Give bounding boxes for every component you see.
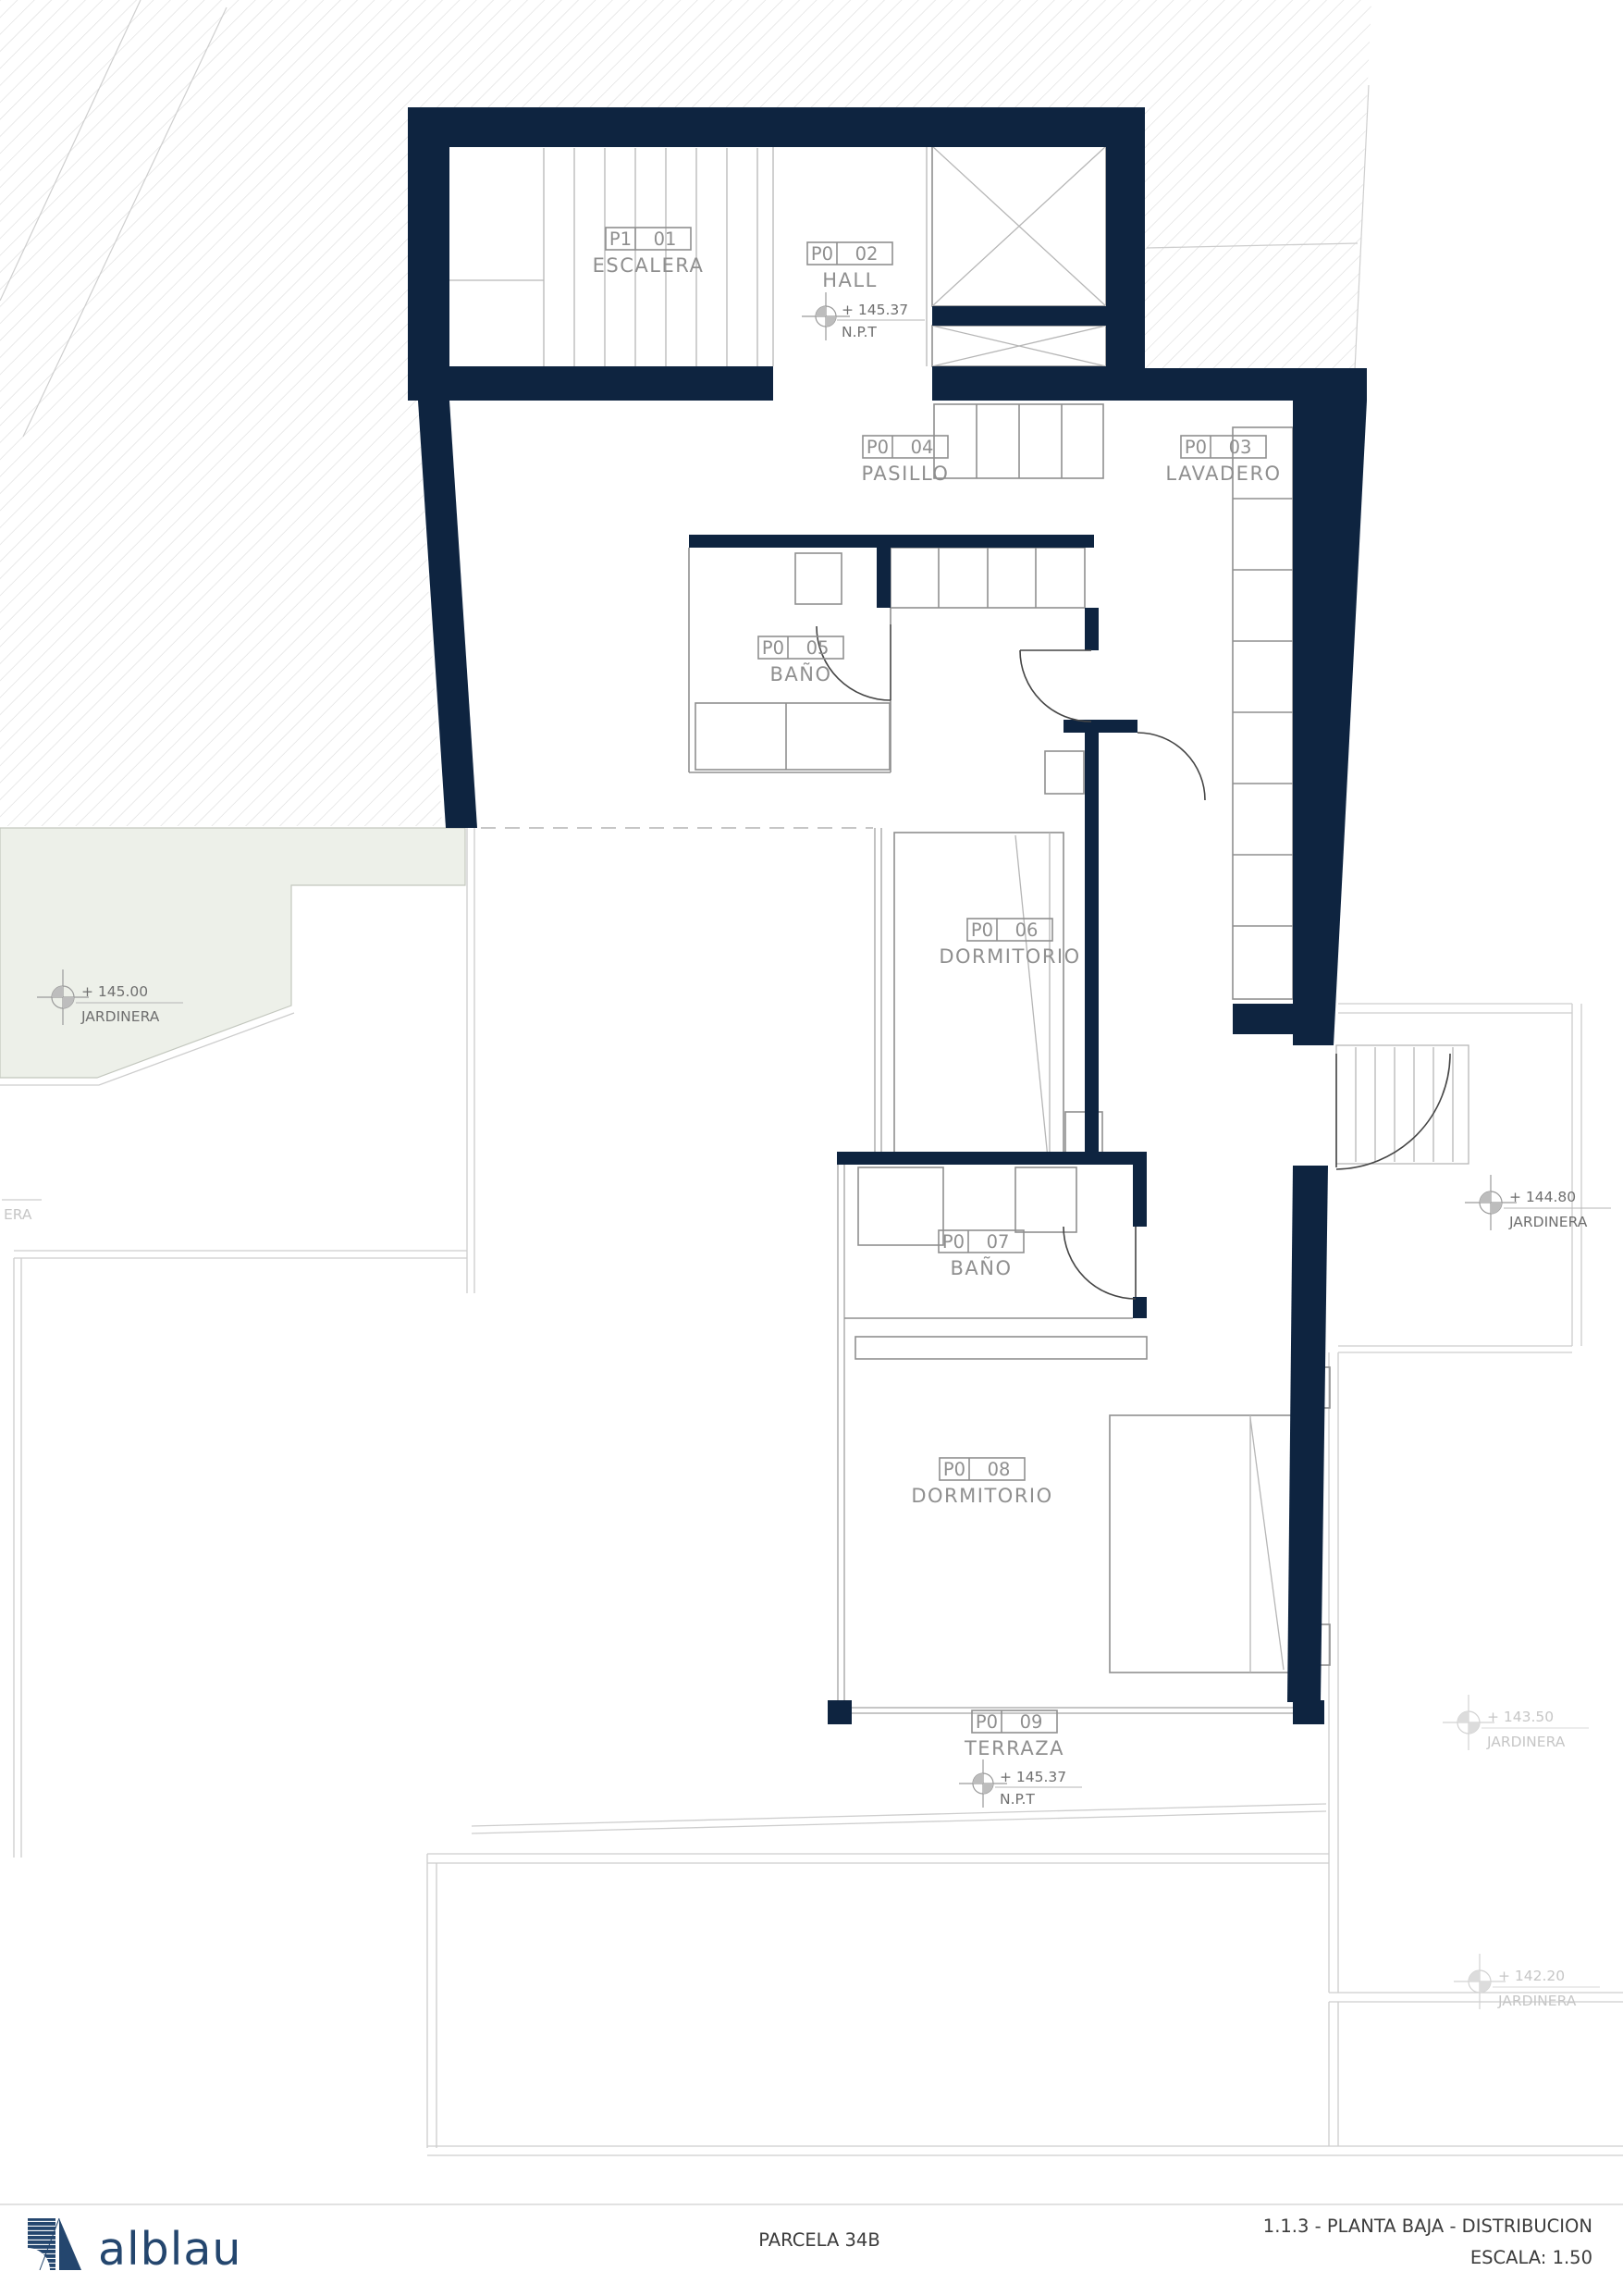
room-name: BAÑO — [769, 661, 831, 685]
room-code: P1 — [609, 228, 632, 250]
level-value: + 142.20 — [1498, 1968, 1565, 1984]
room-number: 03 — [1229, 437, 1252, 458]
level-value: + 145.37 — [842, 302, 908, 318]
level-marker-jardinera-left-partial: ERA — [4, 1206, 32, 1223]
level-label: JARDINERA — [80, 1008, 160, 1025]
room-name: DORMITORIO — [911, 1485, 1052, 1507]
room-number: 08 — [988, 1459, 1011, 1480]
room-code: P0 — [867, 437, 889, 458]
floor-plan-drawing: P1 01 ESCALERA P0 02 HALL + 145.37 N.P.T… — [0, 0, 1623, 2296]
brand-logo-text: alblau — [98, 2223, 241, 2276]
room-code: P0 — [971, 920, 993, 941]
project-title: PARCELA 34B — [758, 2229, 879, 2251]
level-label: JARDINERA — [1497, 1993, 1577, 2009]
level-value: + 145.37 — [1000, 1769, 1066, 1785]
sheet-title: 1.1.3 - PLANTA BAJA - DISTRIBUCION — [1263, 2216, 1592, 2237]
level-label: JARDINERA — [1486, 1734, 1566, 1750]
room-name: PASILLO — [862, 463, 950, 485]
floor-plan-sheet: P1 01 ESCALERA P0 02 HALL + 145.37 N.P.T… — [0, 0, 1623, 2296]
room-name: LAVADERO — [1165, 463, 1281, 485]
level-label: N.P.T — [842, 324, 877, 340]
room-code: P0 — [762, 637, 784, 659]
room-number: 02 — [855, 243, 879, 265]
sheet-scale: ESCALA: 1.50 — [1470, 2247, 1592, 2268]
level-label: JARDINERA — [1508, 1214, 1588, 1230]
room-name: ESCALERA — [593, 254, 705, 277]
room-name: BAÑO — [950, 1255, 1012, 1279]
room-code: P0 — [942, 1231, 965, 1253]
level-label-partial: ERA — [4, 1206, 32, 1223]
level-value: + 145.00 — [81, 983, 148, 1000]
level-value: + 143.50 — [1487, 1709, 1554, 1725]
room-code: P0 — [811, 243, 833, 265]
room-name: DORMITORIO — [939, 945, 1080, 968]
room-code: P0 — [1185, 437, 1207, 458]
room-code: P0 — [976, 1711, 998, 1733]
level-label: N.P.T — [1000, 1791, 1035, 1808]
room-number: 05 — [806, 637, 830, 659]
room-name: HALL — [822, 269, 878, 291]
room-number: 07 — [987, 1231, 1010, 1253]
room-number: 09 — [1020, 1711, 1043, 1733]
room-code: P0 — [943, 1459, 965, 1480]
room-number: 04 — [911, 437, 934, 458]
room-number: 01 — [654, 228, 677, 250]
level-value: + 144.80 — [1509, 1189, 1576, 1205]
room-number: 06 — [1015, 920, 1039, 941]
room-name: TERRAZA — [964, 1737, 1064, 1759]
